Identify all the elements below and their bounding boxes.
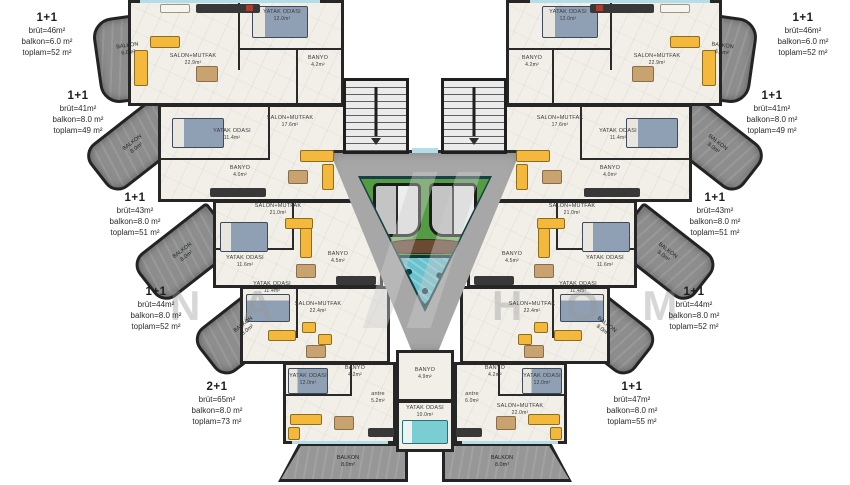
staircase-right (441, 78, 507, 154)
room-area: 4.2m² (345, 372, 365, 379)
room-area: 10.0m² (406, 412, 444, 419)
room-label: BANYO4.0m² (230, 165, 250, 179)
room-name: YATAK ODASI (263, 9, 301, 15)
unit-brut: brüt=47m² (577, 395, 687, 406)
room-label: BANYO4.5m² (502, 251, 522, 265)
stove (596, 5, 603, 11)
room-area: 5.2m² (371, 398, 385, 405)
unit-balkon: balkon=6.0 m² (0, 37, 102, 48)
room-name: SALON+MUTFAK (267, 115, 314, 121)
bed (402, 420, 448, 444)
room-name: YATAK ODASI (599, 128, 637, 134)
room-area: 11.6m² (226, 262, 264, 269)
room-label: BANYO4.2m² (485, 365, 505, 379)
room-area: 4.2m² (308, 62, 328, 69)
room-label: SALON+MUTFAK22.9m² (634, 53, 681, 67)
stair-rail (375, 87, 378, 136)
sofa (268, 330, 296, 341)
room-area: 6.0m² (714, 49, 729, 57)
room-label: SALON+MUTFAK22.0m² (497, 403, 544, 417)
unit-type: 1+1 (101, 286, 211, 298)
sofa (300, 228, 312, 258)
room-label: YATAK ODASI11.4m² (213, 128, 251, 142)
room-area: 8.0m² (495, 462, 509, 468)
window-strip (292, 441, 388, 444)
unit-toplam: toplam=73 m² (162, 417, 272, 428)
room-name: BANYO (230, 165, 250, 171)
wall (508, 48, 612, 50)
armchair (534, 322, 548, 333)
unit-label-L3: 1+1 brüt=43m² balkon=8.0 m² toplam=51 m² (80, 192, 190, 238)
room-name: BANYO (308, 55, 328, 61)
room-label: SALON+MUTFAK22.4m² (509, 301, 556, 315)
unit-label-R1: 1+1 brüt=46m² balkon=6.0 m² toplam=52 m² (748, 12, 850, 58)
room-name: BALKON (491, 455, 513, 461)
unit-toplam: toplam=51 m² (80, 228, 190, 239)
unit-label-R4: 1+1 brüt=44m² balkon=8.0 m² toplam=52 m² (639, 286, 749, 332)
unit-brut: brüt=43m² (660, 206, 770, 217)
sofa (285, 218, 313, 229)
room-label: BANYO4.0m² (600, 165, 620, 179)
unit-type: 1+1 (717, 90, 827, 102)
stair-direction-arrow-icon (371, 138, 381, 145)
room-area: 17.6m² (537, 122, 584, 129)
unit-brut: brüt=65m² (162, 395, 272, 406)
room-name: SALON+MUTFAK (509, 301, 556, 307)
apartment-L1 (128, 0, 344, 106)
wall (238, 48, 342, 50)
unit-brut: brüt=44m² (101, 300, 211, 311)
room-label: YATAK ODASI11.6m² (226, 255, 264, 269)
room-name: BANYO (345, 365, 365, 371)
window-strip (530, 0, 710, 3)
unit-toplam: toplam=52 m² (0, 48, 102, 59)
kitchen-counter (456, 428, 482, 437)
room-area: 11.6m² (586, 262, 624, 269)
dining-table (496, 416, 516, 430)
dining-table (334, 416, 354, 430)
stair-direction-arrow-icon (469, 138, 479, 145)
staircase-left (343, 78, 409, 154)
room-label: SALON+MUTFAK21.0m² (549, 203, 596, 217)
room-label: YATAK ODASI11.6m² (586, 255, 624, 269)
unit-type: 1+1 (748, 12, 850, 24)
room-area: 22.9m² (170, 60, 217, 67)
kitchen-counter (584, 188, 640, 197)
room-area: 4.2m² (485, 372, 505, 379)
room-area: 4.0m² (230, 172, 250, 179)
unit-label-L1: 1+1 brüt=46m² balkon=6.0 m² toplam=52 m² (0, 12, 102, 58)
dining-table (542, 170, 562, 184)
room-label: BANYO4.9m² (415, 367, 435, 381)
room-name: YATAK ODASI (559, 281, 597, 287)
wall (268, 106, 270, 160)
balcony-label: BALKON8.0m² (337, 455, 359, 469)
room-area: 12.0m² (549, 16, 587, 23)
sofa (516, 164, 528, 190)
room-name: BANYO (522, 55, 542, 61)
unit-type: 2+1 (162, 381, 272, 393)
kitchen-counter (210, 188, 266, 197)
room-name: SALON+MUTFAK (170, 53, 217, 59)
room-label: SALON+MUTFAK21.0m² (255, 203, 302, 217)
unit-balkon: balkon=8.0 m² (23, 115, 133, 126)
room-area: 21.0m² (255, 210, 302, 217)
room-name: SALON+MUTFAK (497, 403, 544, 409)
room-name: SALON+MUTFAK (295, 301, 342, 307)
unit-brut: brüt=46m² (0, 26, 102, 37)
dining-table (534, 264, 554, 278)
wardrobe (160, 4, 190, 13)
sofa (538, 228, 550, 258)
room-label: BANYO4.2m² (345, 365, 365, 379)
room-area: 22.4m² (509, 308, 556, 315)
kitchen-counter (368, 428, 394, 437)
unit-brut: brüt=43m² (80, 206, 190, 217)
room-area: 11.4m² (213, 135, 251, 142)
unit-toplam: toplam=49 m² (23, 126, 133, 137)
wall (296, 48, 298, 104)
room-area: 12.0m² (523, 380, 561, 387)
unit-label-R3: 1+1 brüt=43m² balkon=8.0 m² toplam=51 m² (660, 192, 770, 238)
unit-toplam: toplam=52 m² (101, 322, 211, 333)
sofa (290, 414, 322, 425)
room-area: 4.9m² (415, 374, 435, 381)
dining-table (306, 345, 326, 358)
room-area: 12.0m² (263, 16, 301, 23)
floor-plan: 1+1 brüt=46m² balkon=6.0 m² toplam=52 m²… (0, 0, 850, 485)
room-label: antre5.2m² (371, 391, 385, 405)
apartment-R1 (506, 0, 722, 106)
sofa (288, 427, 300, 440)
armchair (518, 334, 532, 345)
unit-label-L5: 2+1 brüt=65m² balkon=8.0 m² toplam=73 m² (162, 381, 272, 427)
unit-balkon: balkon=6.0 m² (748, 37, 850, 48)
room-area: 12.0m² (289, 380, 327, 387)
room-label: YATAK ODASI11.4m² (559, 281, 597, 295)
room-name: BALKON (337, 455, 359, 461)
room-name: BANYO (328, 251, 348, 257)
room-label: SALON+MUTFAK17.6m² (537, 115, 584, 129)
room-name: SALON+MUTFAK (537, 115, 584, 121)
unit-toplam: toplam=52 m² (639, 322, 749, 333)
stove (246, 5, 253, 11)
room-label: SALON+MUTFAK17.6m² (267, 115, 314, 129)
room-label: YATAK ODASI12.0m² (549, 9, 587, 23)
room-label: SALON+MUTFAK22.9m² (170, 53, 217, 67)
sofa (516, 150, 550, 162)
dining-table (524, 345, 544, 358)
room-name: SALON+MUTFAK (634, 53, 681, 59)
wardrobe (660, 4, 690, 13)
room-area: 17.6m² (267, 122, 314, 129)
unit-balkon: balkon=8.0 m² (101, 311, 211, 322)
wall (498, 394, 565, 396)
room-label: YATAK ODASI12.0m² (263, 9, 301, 23)
bed (582, 222, 630, 252)
room-name: antre (371, 391, 385, 397)
room-name: YATAK ODASI (213, 128, 251, 134)
unit-balkon: balkon=8.0 m² (660, 217, 770, 228)
dining-table (632, 66, 654, 82)
room-name: YATAK ODASI (586, 255, 624, 261)
room-label: YATAK ODASI10.0m² (406, 405, 444, 419)
bed (220, 222, 268, 252)
dining-table (288, 170, 308, 184)
room-area: 22.9m² (634, 60, 681, 67)
wall (580, 158, 690, 160)
kitchen-counter (474, 276, 514, 285)
sofa (550, 427, 562, 440)
room-label: antre6.0m² (465, 391, 479, 405)
wall (580, 106, 582, 160)
sofa (300, 150, 334, 162)
window-strip (412, 148, 438, 153)
unit-balkon: balkon=8.0 m² (639, 311, 749, 322)
sofa (670, 36, 700, 48)
room-name: YATAK ODASI (523, 373, 561, 379)
unit-balkon: balkon=8.0 m² (717, 115, 827, 126)
sofa (322, 164, 334, 190)
unit-label-L4: 1+1 brüt=44m² balkon=8.0 m² toplam=52 m² (101, 286, 211, 332)
room-area: 6.0m² (465, 398, 479, 405)
unit-type: 1+1 (639, 286, 749, 298)
room-name: BANYO (485, 365, 505, 371)
unit-toplam: toplam=52 m² (748, 48, 850, 59)
room-area: 22.0m² (497, 410, 544, 417)
unit-balkon: balkon=8.0 m² (577, 406, 687, 417)
kitchen-counter (336, 276, 376, 285)
room-name: YATAK ODASI (289, 373, 327, 379)
balcony-label: BALKON8.0m² (491, 455, 513, 469)
unit-type: 1+1 (0, 12, 102, 24)
window-strip (462, 441, 558, 444)
room-area: 6.0m² (121, 49, 136, 57)
unit-type: 1+1 (577, 381, 687, 393)
room-label: BANYO4.5m² (328, 251, 348, 265)
room-name: YATAK ODASI (406, 405, 444, 411)
room-area: 11.4m² (599, 135, 637, 142)
room-area: 4.0m² (600, 172, 620, 179)
sofa (537, 218, 565, 229)
room-area: 4.2m² (522, 62, 542, 69)
sofa (554, 330, 582, 341)
unit-brut: brüt=41m² (23, 104, 133, 115)
room-name: SALON+MUTFAK (549, 203, 596, 209)
unit-brut: brüt=44m² (639, 300, 749, 311)
unit-toplam: toplam=55 m² (577, 417, 687, 428)
room-label: YATAK ODASI11.4m² (253, 281, 291, 295)
window-strip (140, 0, 320, 3)
room-label: YATAK ODASI11.4m² (599, 128, 637, 142)
room-name: antre (465, 391, 479, 397)
room-name: YATAK ODASI (226, 255, 264, 261)
room-label: BANYO4.2m² (308, 55, 328, 69)
room-name: YATAK ODASI (253, 281, 291, 287)
wall (552, 48, 554, 104)
room-label: YATAK ODASI12.0m² (289, 373, 327, 387)
unit-brut: brüt=46m² (748, 26, 850, 37)
room-name: BANYO (415, 367, 435, 373)
wall (285, 394, 352, 396)
balcony-label: BALKON6.0m² (710, 41, 734, 58)
sofa (150, 36, 180, 48)
unit-type: 1+1 (23, 90, 133, 102)
unit-label-R2: 1+1 brüt=41m² balkon=8.0 m² toplam=49 m² (717, 90, 827, 136)
room-area: 21.0m² (549, 210, 596, 217)
unit-label-L2: 1+1 brüt=41m² balkon=8.0 m² toplam=49 m² (23, 90, 133, 136)
room-area: 11.4m² (253, 288, 291, 295)
armchair (318, 334, 332, 345)
room-name: YATAK ODASI (549, 9, 587, 15)
unit-balkon: balkon=8.0 m² (80, 217, 190, 228)
room-label: BANYO4.2m² (522, 55, 542, 69)
stair-rail (473, 87, 476, 136)
room-area: 22.4m² (295, 308, 342, 315)
dining-table (296, 264, 316, 278)
unit-brut: brüt=41m² (717, 104, 827, 115)
room-area: 4.5m² (502, 258, 522, 265)
room-name: SALON+MUTFAK (255, 203, 302, 209)
unit-type: 1+1 (660, 192, 770, 204)
room-label: YATAK ODASI12.0m² (523, 373, 561, 387)
room-name: BANYO (600, 165, 620, 171)
room-label: SALON+MUTFAK22.4m² (295, 301, 342, 315)
unit-type: 1+1 (80, 192, 190, 204)
room-area: 4.5m² (328, 258, 348, 265)
wall (160, 158, 270, 160)
room-name: BANYO (502, 251, 522, 257)
unit-toplam: toplam=51 m² (660, 228, 770, 239)
armchair (302, 322, 316, 333)
room-area: 8.0m² (341, 462, 355, 468)
unit-label-R5: 1+1 brüt=47m² balkon=8.0 m² toplam=55 m² (577, 381, 687, 427)
unit-balkon: balkon=8.0 m² (162, 406, 272, 417)
dining-table (196, 66, 218, 82)
unit-toplam: toplam=49 m² (717, 126, 827, 137)
room-area: 11.4m² (559, 288, 597, 295)
